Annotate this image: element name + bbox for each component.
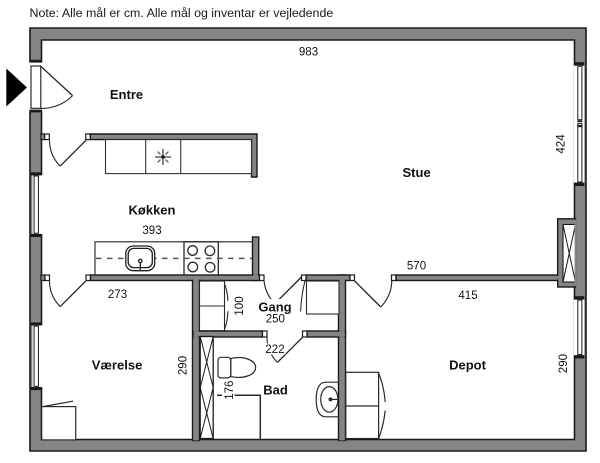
svg-text:Værelse: Værelse: [92, 357, 143, 372]
svg-text:222: 222: [265, 344, 284, 356]
svg-text:Entre: Entre: [110, 87, 143, 102]
svg-text:Note: Alle mål er cm. Alle mål: Note: Alle mål er cm. Alle mål og invent…: [30, 6, 334, 20]
svg-text:570: 570: [407, 261, 426, 273]
svg-text:273: 273: [108, 289, 127, 301]
svg-text:983: 983: [299, 47, 318, 59]
svg-text:415: 415: [458, 290, 477, 302]
svg-text:Stue: Stue: [403, 165, 431, 180]
svg-text:Gang: Gang: [258, 300, 291, 315]
svg-text:393: 393: [142, 225, 161, 237]
svg-text:Køkken: Køkken: [129, 203, 176, 218]
svg-text:250: 250: [266, 314, 285, 326]
svg-text:176: 176: [224, 381, 236, 400]
svg-text:100: 100: [234, 296, 246, 315]
svg-text:Bad: Bad: [263, 383, 288, 398]
svg-text:290: 290: [178, 356, 190, 375]
svg-text:Depot: Depot: [449, 357, 487, 372]
svg-text:290: 290: [558, 354, 570, 373]
svg-text:424: 424: [556, 134, 568, 154]
